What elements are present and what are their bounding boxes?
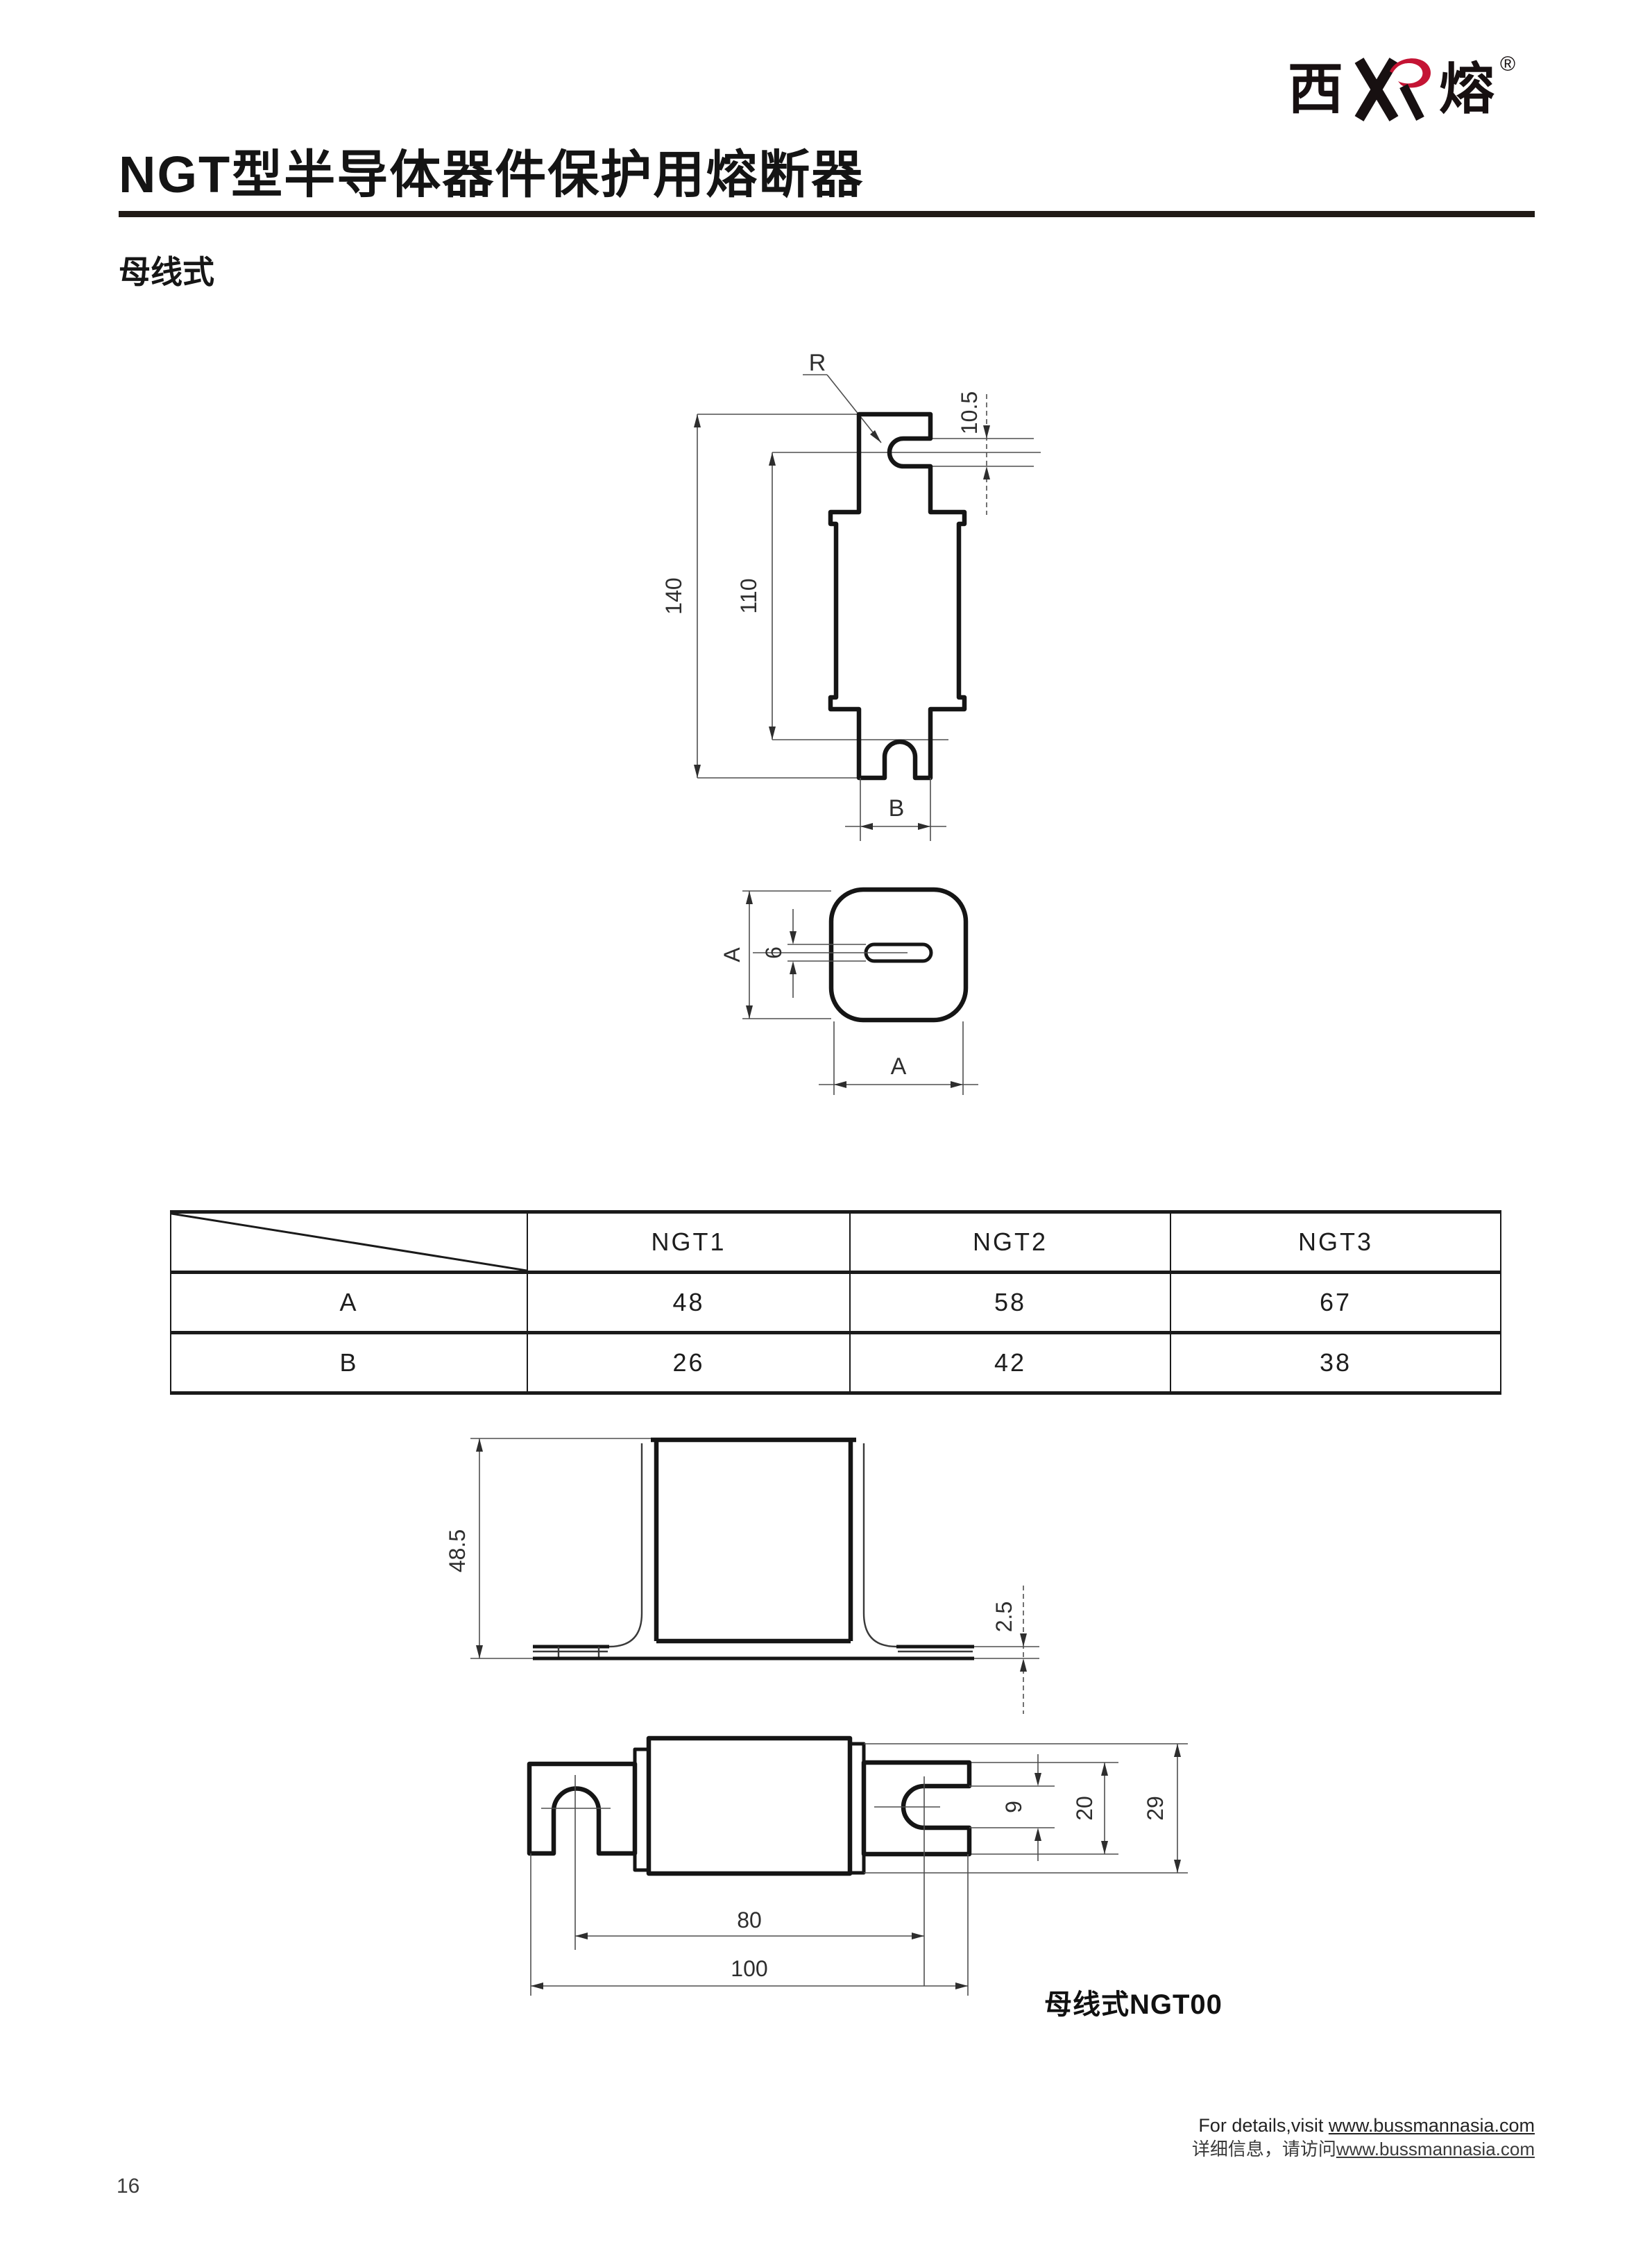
footer: For details,visit www.bussmannasia.com 详… (1192, 2114, 1535, 2162)
dim-label-a-left: A (722, 947, 744, 962)
dim-label-80: 80 (737, 1908, 762, 1933)
fuse-side-view-drawing: R 10.5 140 110 B (645, 319, 1082, 874)
cell-b-ngt2: 42 (850, 1333, 1170, 1393)
dim-label-10-5: 10.5 (957, 391, 982, 434)
logo-xr-icon (1349, 55, 1433, 124)
page-number: 16 (117, 2175, 139, 2198)
table-corner-cell (171, 1212, 527, 1273)
cell-a-ngt1: 48 (527, 1273, 850, 1333)
table-header-row: NGT1 NGT2 NGT3 (171, 1212, 1501, 1273)
footer-en-link[interactable]: www.bussmannasia.com (1329, 2115, 1535, 2136)
col-header-ngt1: NGT1 (527, 1212, 850, 1273)
table-row: B 26 42 38 (171, 1333, 1501, 1393)
logo-cn-left: 西 (1288, 62, 1343, 117)
title-rule (119, 211, 1535, 217)
busbar-fuse-drawing: 9 20 29 80 100 (486, 1721, 1249, 2026)
footer-line-cn: 详细信息，请访问www.bussmannasia.com (1192, 2138, 1535, 2162)
col-header-ngt2: NGT2 (850, 1212, 1170, 1273)
dim-label-2-5: 2.5 (991, 1602, 1016, 1632)
cell-a-ngt3: 67 (1170, 1273, 1501, 1333)
dim-label-20: 20 (1072, 1796, 1097, 1821)
footer-line-en: For details,visit www.bussmannasia.com (1192, 2114, 1535, 2138)
fuse-top-view-drawing: A 6 A (722, 874, 1006, 1110)
section-subtitle: 母线式 (119, 247, 214, 293)
dim-label-a-bottom: A (891, 1053, 907, 1080)
dim-label-b: B (889, 795, 905, 822)
page-title: NGT型半导体器件保护用熔断器 (119, 133, 864, 207)
footer-cn-text: 详细信息，请访问 (1192, 2139, 1336, 2159)
cell-b-ngt1: 26 (527, 1333, 850, 1393)
dim-label-100: 100 (731, 1956, 767, 1981)
dim-label-48-5: 48.5 (445, 1529, 470, 1572)
row-label-a: A (171, 1273, 527, 1333)
row-label-b: B (171, 1333, 527, 1393)
cell-b-ngt3: 38 (1170, 1333, 1501, 1393)
catalog-page: 西 熔 ® NGT型半导体器件保护用熔断器 母线式 (0, 0, 1652, 2242)
dimension-table: NGT1 NGT2 NGT3 A 48 58 67 B 26 42 38 (170, 1210, 1500, 1395)
cell-a-ngt2: 58 (850, 1273, 1170, 1333)
registered-mark-icon: ® (1500, 53, 1515, 76)
bracket-mount-drawing: 48.5 2.5 (430, 1409, 1082, 1721)
diagonal-divider (171, 1214, 527, 1271)
col-header-ngt3: NGT3 (1170, 1212, 1501, 1273)
brand-logo: 西 熔 ® (1288, 54, 1538, 125)
dim-label-29: 29 (1143, 1796, 1168, 1821)
dim-label-r: R (809, 350, 826, 376)
footer-en-text: For details,visit (1198, 2115, 1329, 2136)
dim-label-110: 110 (736, 578, 761, 613)
dim-label-9: 9 (1001, 1801, 1026, 1813)
table-row: A 48 58 67 (171, 1273, 1501, 1333)
dim-label-140: 140 (661, 577, 686, 614)
logo-cn-right: 熔 (1439, 62, 1495, 117)
footer-cn-link[interactable]: www.bussmannasia.com (1336, 2139, 1535, 2159)
dim-label-6: 6 (761, 946, 786, 959)
drawing-caption: 母线式NGT00 (1044, 1982, 1223, 2022)
